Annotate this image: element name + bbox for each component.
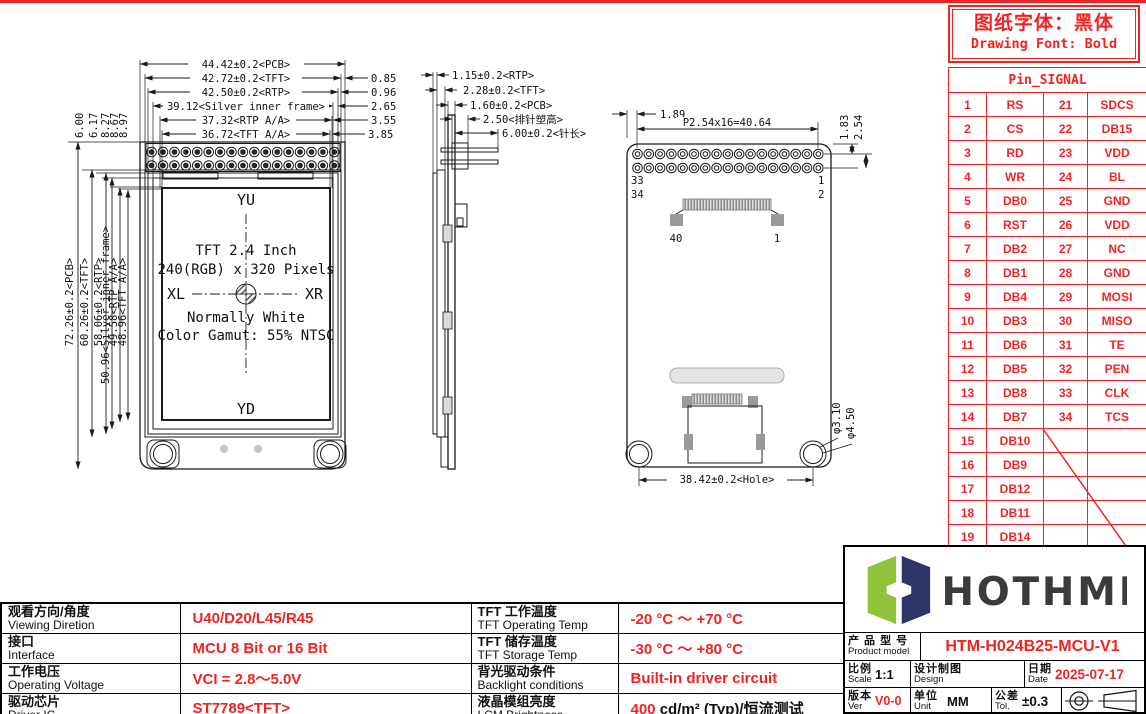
pin-table-row: 14DB734TCS	[949, 405, 1146, 429]
date-label-en: Date	[1028, 675, 1052, 685]
dim-tft-aa-width: 36.72<TFT A/A>	[202, 129, 291, 141]
pin-signal: DB7	[987, 405, 1044, 429]
pin-signal: RS	[987, 93, 1044, 117]
pin-signal: BL	[1088, 165, 1146, 189]
dim-hole-inner-label: φ3.10	[831, 402, 843, 434]
spec-value: MCU 8 Bit or 16 Bit	[180, 633, 471, 663]
pin-signal: RST	[987, 213, 1044, 237]
drawing-sheet: YU YD TFT 2.4 Inch 240(RGB) x 320 Pixels…	[0, 0, 1146, 714]
pin-table-row: 12DB532PEN	[949, 357, 1146, 381]
dim-hole-span-label: 38.42±0.2<Hole>	[680, 474, 775, 486]
offset-tft-aa: 3.85	[368, 129, 393, 141]
pin-number: 29	[1044, 285, 1088, 309]
scale-value: 1:1	[875, 667, 894, 682]
tol-value: ±0.3	[1022, 694, 1048, 709]
pin-number: 22	[1044, 117, 1088, 141]
spec-value: Built-in driver circuit	[618, 663, 844, 693]
pin-signal: MISO	[1088, 309, 1146, 333]
pin-table-row: 13DB833CLK	[949, 381, 1146, 405]
spec-table: 观看方向/角度Viewing DiretionU40/D20/L45/R45TF…	[0, 602, 845, 714]
front-pin-holes	[147, 147, 339, 170]
dim-side-tft: 2.28±0.2<TFT>	[463, 85, 545, 97]
pin-signal: NC	[1088, 237, 1146, 261]
pin-signal: RD	[987, 141, 1044, 165]
label-yu: YU	[237, 191, 255, 209]
dim-pcb-width: 44.42±0.2<PCB>	[202, 59, 291, 71]
pin34-label: 34	[631, 189, 644, 201]
logo-h-right-icon	[902, 555, 930, 623]
pin-number: 7	[949, 237, 987, 261]
spec-label: 接口Interface	[1, 633, 180, 663]
pin-number: 26	[1044, 213, 1088, 237]
date-cell: 日期 Date 2025-07-17	[1025, 661, 1144, 687]
dim-side-pin: 6.00±0.2<针长>	[502, 127, 586, 140]
spec-label: 驱动芯片Driver IC	[1, 693, 180, 714]
pin-number: 16	[949, 453, 987, 477]
dim-side-pcb: 1.60±0.2<PCB>	[470, 100, 552, 112]
pin-table-row: 9DB429MOSI	[949, 285, 1146, 309]
pin-number: 27	[1044, 237, 1088, 261]
spec-row: 观看方向/角度Viewing DiretionU40/D20/L45/R45TF…	[1, 603, 844, 633]
offset-rtp: 0.96	[371, 87, 396, 99]
pin-number: 3	[949, 141, 987, 165]
ver-unit-tol-row: 版本 Ver V0-0 单位 Unit MM 公差 Tol. ±0.3	[845, 688, 1144, 714]
scale-design-date-row: 比例 Scale 1:1 设计制图 Design 日期 Date 2025-07…	[845, 661, 1144, 688]
dim-side-rtp: 1.15±0.2<RTP>	[452, 70, 534, 82]
pin-signal: PEN	[1088, 357, 1146, 381]
back-pin-holes	[633, 149, 823, 173]
pin-table-row: 8DB128GND	[949, 261, 1146, 285]
pin2-label: 2	[818, 189, 824, 201]
pin-signal: GND	[1088, 189, 1146, 213]
product-value-cell: HTM-H024B25-MCU-V1	[921, 633, 1144, 660]
projection-symbol-icon	[1064, 689, 1142, 713]
pin-signal: DB4	[987, 285, 1044, 309]
pin-table-row: 4WR24BL	[949, 165, 1146, 189]
design-label-en: Design	[914, 675, 962, 685]
pin-signal: GND	[1088, 261, 1146, 285]
top-offset-4: 8.97	[118, 113, 130, 138]
pin-number: 6	[949, 213, 987, 237]
pin33-label: 33	[631, 175, 644, 187]
pin-signal: DB2	[987, 237, 1044, 261]
pin-signal: SDCS	[1088, 93, 1146, 117]
spec-value: U40/D20/L45/R45	[180, 603, 471, 633]
pin-number: 32	[1044, 357, 1088, 381]
spec-value: -20 °C ～ +70 °C	[618, 603, 844, 633]
spec-value: -30 °C ～ +80 °C	[618, 633, 844, 663]
spec-value: 400 cd/m² (Typ)/恒流测试	[618, 693, 844, 714]
spec-label: 观看方向/角度Viewing Diretion	[1, 603, 180, 633]
dim-rtp-width: 42.50±0.2<RTP>	[202, 87, 291, 99]
top-offset-1: 6.17	[88, 113, 100, 138]
pin-signal: DB5	[987, 357, 1044, 381]
pin-signal: DB1	[987, 261, 1044, 285]
spec-value: ST7789<TFT>	[180, 693, 471, 714]
unit-cell: 单位 Unit MM	[911, 688, 992, 714]
pin-number: 33	[1044, 381, 1088, 405]
pin-signal: DB8	[987, 381, 1044, 405]
front-view: YU YD TFT 2.4 Inch 240(RGB) x 320 Pixels…	[64, 58, 396, 469]
pin-number: 8	[949, 261, 987, 285]
pin-signal: DB12	[987, 477, 1044, 501]
tol-label-en: Tol.	[995, 702, 1019, 712]
pin-signal: DB3	[987, 309, 1044, 333]
ver-label-en: Ver	[848, 702, 872, 712]
label-xl: XL	[167, 285, 185, 303]
pin-number: 2	[949, 117, 987, 141]
pin-signal: CLK	[1088, 381, 1146, 405]
spec-row: 工作电压Operating VoltageVCI = 2.8～5.0V背光驱动条…	[1, 663, 844, 693]
note-text-cn: 图纸字体：黑体	[953, 13, 1135, 36]
dim-tft-height: 60.26±0.2<TFT>	[79, 258, 91, 347]
pin-table-title: Pin_SIGNAL	[949, 68, 1146, 93]
pin-number: 24	[1044, 165, 1088, 189]
pin-signal: DB0	[987, 189, 1044, 213]
spec-label: TFT 储存温度TFT Storage Temp	[471, 633, 618, 663]
pin-signal: DB15	[1088, 117, 1146, 141]
pin-number: 14	[949, 405, 987, 429]
pin-signal: VDD	[1088, 213, 1146, 237]
dim-tft-aa-height: 48.96<TFT A/A>	[117, 258, 129, 347]
pin-number: 25	[1044, 189, 1088, 213]
pin-signal: MOSI	[1088, 285, 1146, 309]
pin-table-row: 5DB025GND	[949, 189, 1146, 213]
spec-label: 工作电压Operating Voltage	[1, 663, 180, 693]
date-value: 2025-07-17	[1055, 667, 1124, 682]
pin-signal: DB6	[987, 333, 1044, 357]
fpc-pin40-label: 40	[670, 233, 683, 245]
display-size-text: TFT 2.4 Inch	[195, 243, 296, 259]
display-mode-text: Normally White	[187, 310, 305, 326]
pin-number: 17	[949, 477, 987, 501]
ver-value: V0-0	[875, 694, 901, 708]
pin-number: 9	[949, 285, 987, 309]
scale-label-en: Scale	[848, 675, 872, 685]
font-note-inner: 图纸字体：黑体 Drawing Font: Bold	[952, 9, 1136, 59]
offset-silver: 2.65	[371, 101, 396, 113]
pin-signal: DB11	[987, 501, 1044, 525]
pin-table-row: 6RST26VDD	[949, 213, 1146, 237]
design-cell: 设计制图 Design	[911, 661, 1025, 687]
pin-number: 4	[949, 165, 987, 189]
pin-number: 31	[1044, 333, 1088, 357]
pin-number: 34	[1044, 405, 1088, 429]
hothmi-logo: HOTHMI	[862, 552, 1127, 628]
spec-value: VCI = 2.8～5.0V	[180, 663, 471, 693]
dim-side-header: 2.50<排针塑高>	[483, 113, 563, 126]
pin-table-row: 3RD23VDD	[949, 141, 1146, 165]
pin-number: 1	[949, 93, 987, 117]
pin-number: 15	[949, 429, 987, 453]
projection-symbol-cell	[1062, 688, 1144, 714]
pin-number: 11	[949, 333, 987, 357]
pin-signal: TE	[1088, 333, 1146, 357]
pin-signal: DB9	[987, 453, 1044, 477]
pin-number: 30	[1044, 309, 1088, 333]
scale-cell: 比例 Scale 1:1	[845, 661, 911, 687]
label-xr: XR	[305, 285, 324, 303]
font-note-box: 图纸字体：黑体 Drawing Font: Bold	[948, 5, 1140, 63]
offset-tft: 0.85	[371, 73, 396, 85]
pin-number: 13	[949, 381, 987, 405]
dim-row1-label: 1.83	[839, 115, 851, 140]
logo-h-left-icon	[868, 555, 896, 623]
pin-number: 21	[1044, 93, 1088, 117]
technical-drawing: YU YD TFT 2.4 Inch 240(RGB) x 320 Pixels…	[0, 2, 945, 602]
pin-table-row: 11DB631TE	[949, 333, 1146, 357]
dim-tft-width: 42.72±0.2<TFT>	[202, 73, 291, 85]
spec-row: 接口InterfaceMCU 8 Bit or 16 BitTFT 储存温度TF…	[1, 633, 844, 663]
offset-rtp-aa: 3.55	[371, 115, 396, 127]
pin-signal: TCS	[1088, 405, 1146, 429]
label-yd: YD	[237, 400, 255, 418]
title-block: HOTHMI 产 品 型 号 Product model HTM-H024B25…	[843, 545, 1146, 714]
fpc-pin1-label: 1	[774, 233, 780, 245]
top-offset-0: 6.00	[74, 113, 86, 138]
product-row: 产 品 型 号 Product model HTM-H024B25-MCU-V1	[845, 633, 1144, 661]
display-res-text: 240(RGB) x 320 Pixels	[157, 262, 334, 278]
pin-number: 10	[949, 309, 987, 333]
side-view: 1.15±0.2<RTP> 2.28±0.2<TFT> 1.60±0.2<PCB…	[421, 70, 586, 469]
pin-number: 5	[949, 189, 987, 213]
pin-signal: VDD	[1088, 141, 1146, 165]
spec-label: 液晶模组亮度LCM Brightness	[471, 693, 618, 714]
spec-label: 背光驱动条件Backlight conditions	[471, 663, 618, 693]
pin-signal: DB10	[987, 429, 1044, 453]
pin-signal: CS	[987, 117, 1044, 141]
product-label-en: Product model	[848, 647, 909, 657]
tol-cell: 公差 Tol. ±0.3	[992, 688, 1062, 714]
dim-pcb-height: 72.26±0.2<PCB>	[64, 258, 76, 347]
pin-table-row: 1RS21SDCS	[949, 93, 1146, 117]
dim-row2-label: 2.54	[853, 115, 865, 140]
logo-row: HOTHMI	[845, 547, 1144, 633]
spec-row: 驱动芯片Driver ICST7789<TFT>液晶模组亮度LCM Bright…	[1, 693, 844, 714]
unit-label-en: Unit	[914, 702, 938, 712]
pin-table-row: 2CS22DB15	[949, 117, 1146, 141]
ver-cell: 版本 Ver V0-0	[845, 688, 911, 714]
dim-silver-width: 39.12<Silver inner frame>	[167, 101, 325, 113]
spec-label: TFT 工作温度TFT Operating Temp	[471, 603, 618, 633]
product-label-cell: 产 品 型 号 Product model	[845, 633, 921, 660]
pin-table-row: 10DB330MISO	[949, 309, 1146, 333]
pin-signal: WR	[987, 165, 1044, 189]
dim-hole-outer-label: φ4.50	[845, 407, 857, 439]
brand-name: HOTHMI	[942, 570, 1128, 615]
pin1-label: 1	[818, 175, 824, 187]
note-text-en: Drawing Font: Bold	[953, 36, 1135, 53]
unit-value: MM	[947, 694, 969, 709]
display-gamut-text: Color Gamut: 55% NTSC	[157, 328, 334, 344]
dim-pitch-label: P2.54x16=40.64	[683, 117, 772, 129]
pin-number: 18	[949, 501, 987, 525]
pin-number: 28	[1044, 261, 1088, 285]
back-view: 33 34 1 2 40 1	[612, 109, 872, 486]
pin-table-row: 7DB227NC	[949, 237, 1146, 261]
pin-number: 23	[1044, 141, 1088, 165]
product-model: HTM-H024B25-MCU-V1	[945, 638, 1119, 656]
pin-number: 12	[949, 357, 987, 381]
dim-rtp-aa-width: 37.32<RTP A/A>	[202, 115, 291, 127]
